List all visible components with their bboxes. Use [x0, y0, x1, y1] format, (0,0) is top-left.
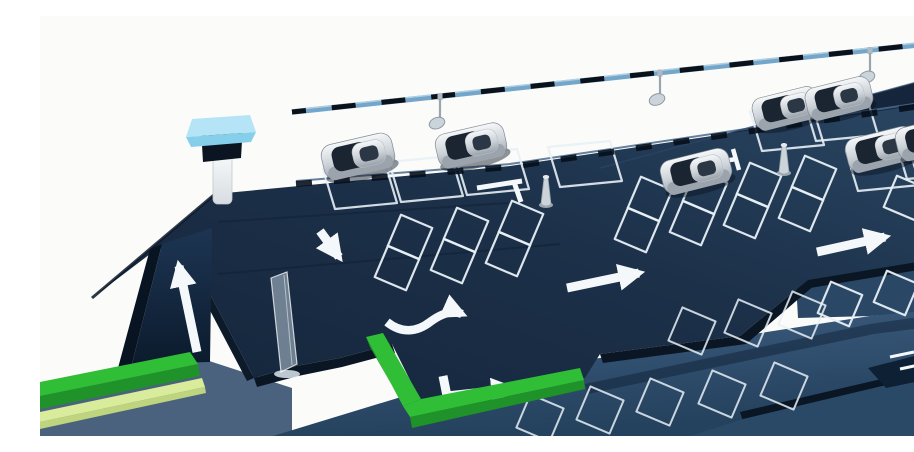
parking-3d-scene [40, 16, 914, 436]
bollard-cap [781, 143, 787, 147]
kiosk-post [213, 154, 232, 204]
fixture-clamp [658, 70, 663, 77]
fixture-clamp [438, 93, 443, 100]
fixture-clamp [868, 47, 873, 54]
gate-base-glow [274, 370, 300, 378]
bollard-cap [543, 175, 549, 179]
scene-canvas [40, 16, 914, 436]
